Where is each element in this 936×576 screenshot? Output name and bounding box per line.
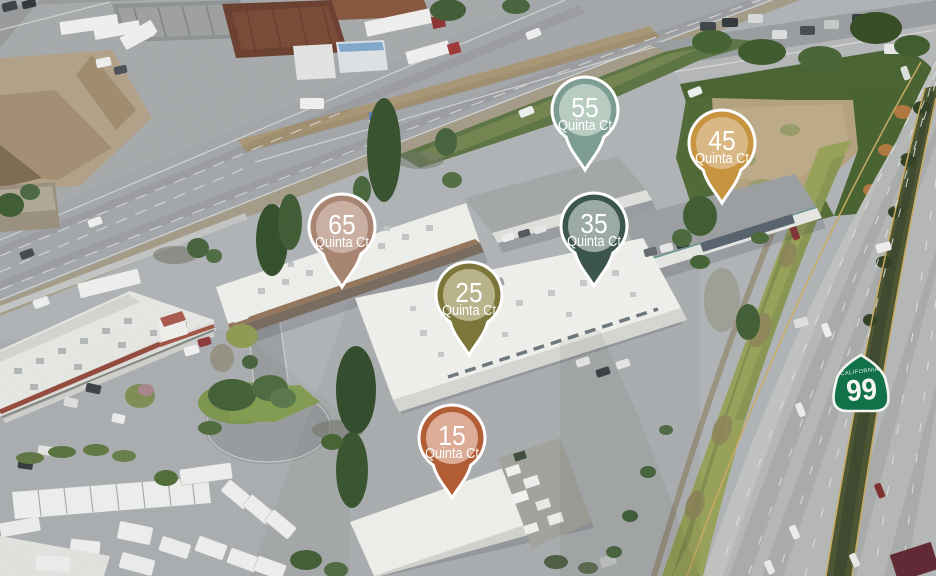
svg-text:99: 99 bbox=[845, 373, 878, 409]
svg-text:Quinta Ct: Quinta Ct bbox=[695, 150, 749, 166]
svg-text:Quinta Ct: Quinta Ct bbox=[442, 302, 496, 318]
svg-text:Quinta Ct: Quinta Ct bbox=[567, 233, 621, 249]
svg-text:Quinta Ct: Quinta Ct bbox=[558, 117, 612, 133]
svg-text:Quinta Ct: Quinta Ct bbox=[425, 445, 479, 461]
svg-text:Quinta Ct: Quinta Ct bbox=[315, 234, 369, 250]
